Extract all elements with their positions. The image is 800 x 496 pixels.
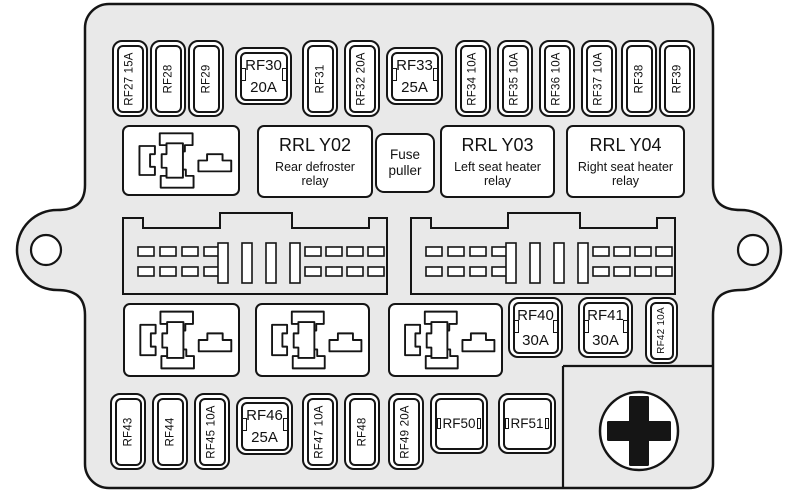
- fuse-terminal-notch: [283, 418, 288, 431]
- fuse-rf50: RF50: [430, 393, 488, 454]
- fuse-body: RF37 10A: [586, 45, 613, 113]
- fuse-terminal-notch: [392, 68, 397, 81]
- relay-socket-icon: [122, 125, 240, 196]
- fuse-label: RF44: [164, 417, 176, 446]
- fuse-box-diagram: RF27 15ARF28RF29RF3020ARF31RF32 20ARF332…: [0, 0, 800, 496]
- fuse-amperage: 30A: [522, 333, 549, 349]
- fuse-body: RF29: [193, 45, 220, 113]
- fuse-body: RF35 10A: [502, 45, 529, 113]
- fuse-rf46: RF4625A: [236, 397, 293, 455]
- fuse-terminal-notch: [477, 418, 481, 429]
- fuse-rf35-10a: RF35 10A: [497, 40, 533, 117]
- fuse-label: RF49 20A: [400, 405, 412, 458]
- fuse-rf31: RF31: [302, 40, 338, 117]
- fuse-body: RF50: [435, 398, 484, 450]
- relay-socket-icon: [388, 303, 503, 377]
- mounting-hole-right: [738, 235, 768, 265]
- fuse-body: RF39: [664, 45, 691, 113]
- fuse-body: RF45 10A: [199, 398, 226, 466]
- fuse-amperage: 25A: [251, 430, 278, 446]
- fuse-body: RF34 10A: [460, 45, 487, 113]
- fuse-rf42-10a: RF42 10A: [645, 297, 678, 364]
- fuse-rf30: RF3020A: [235, 47, 292, 105]
- fuse-rf28: RF28: [150, 40, 186, 117]
- fuse-label: RF42 10A: [656, 307, 667, 354]
- fuse-rf44: RF44: [152, 393, 188, 470]
- fuse-terminal-notch: [242, 418, 247, 431]
- relay-description: Right seat heater relay: [575, 160, 677, 188]
- fuse-rf32-20a: RF32 20A: [344, 40, 380, 117]
- fuse-label: RF48: [356, 417, 368, 446]
- fuse-label: RF35 10A: [509, 52, 521, 105]
- relay-title: RRL Y04: [589, 136, 661, 154]
- fuse-label: RF45 10A: [206, 405, 218, 458]
- fuse-amperage: 30A: [592, 333, 619, 349]
- fuse-label: RF37 10A: [593, 52, 605, 105]
- fuse-rf48: RF48: [344, 393, 380, 470]
- fuse-body: RF3325A: [391, 52, 439, 101]
- fuse-body: RF44: [157, 398, 184, 466]
- fuse-label: RF30: [245, 58, 282, 74]
- plus-icon: [607, 421, 671, 441]
- fuse-body: RF48: [349, 398, 376, 466]
- fuse-label: RF28: [162, 64, 174, 93]
- fuse-body: RF47 10A: [307, 398, 334, 466]
- fuse-body: RF27 15A: [117, 45, 144, 113]
- fuse-label: RF34 10A: [467, 52, 479, 105]
- fuse-label: RF39: [671, 64, 683, 93]
- fuse-body: RF3020A: [240, 52, 288, 101]
- mounting-hole-left: [31, 235, 61, 265]
- fuse-rf39: RF39: [659, 40, 695, 117]
- fuse-terminal-notch: [514, 320, 519, 333]
- relay-description: Rear defroster relay: [264, 160, 366, 188]
- fuse-label: RF38: [633, 64, 645, 93]
- fuse-body: RF38: [626, 45, 653, 113]
- fuse-rf34-10a: RF34 10A: [455, 40, 491, 117]
- fuse-label: RF33: [396, 58, 433, 74]
- fuse-label: RF27 15A: [124, 52, 136, 105]
- fuse-amperage: 20A: [250, 80, 277, 96]
- fuse-label: RF41: [587, 308, 624, 324]
- fuse-body: RF4130A: [583, 302, 629, 354]
- fuse-rf43: RF43: [110, 393, 146, 470]
- relay-description: Left seat heater relay: [447, 160, 549, 188]
- fuse-rf40: RF4030A: [508, 297, 563, 358]
- fuse-rf38: RF38: [621, 40, 657, 117]
- fuse-label: RF46: [246, 408, 283, 424]
- fuse-rf41: RF4130A: [578, 297, 633, 358]
- fuse-label: RF36 10A: [551, 52, 563, 105]
- relay-title: RRL Y02: [279, 136, 351, 154]
- relay-socket-icon: [123, 303, 240, 377]
- harness-connector-icon: [122, 212, 388, 295]
- fuse-body: RF28: [155, 45, 182, 113]
- relay-box-rrl-y02: RRL Y02Rear defroster relay: [257, 125, 373, 198]
- fuse-rf45-10a: RF45 10A: [194, 393, 230, 470]
- fuse-body: RF49 20A: [393, 398, 420, 466]
- fuse-terminal-notch: [241, 68, 246, 81]
- fuse-terminal-notch: [623, 320, 628, 333]
- fuse-label: RF31: [314, 64, 326, 93]
- fuse-body: RF42 10A: [650, 302, 674, 360]
- fuse-body: RF43: [115, 398, 142, 466]
- fuse-rf47-10a: RF47 10A: [302, 393, 338, 470]
- fuse-label: RF51: [510, 416, 543, 431]
- relay-box-rrl-y03: RRL Y03Left seat heater relay: [440, 125, 555, 198]
- fuse-body: RF4625A: [241, 402, 289, 451]
- fuse-body: RF51: [503, 398, 552, 450]
- relay-socket-icon: [255, 303, 370, 377]
- fuse-rf49-20a: RF49 20A: [388, 393, 424, 470]
- fuse-rf37-10a: RF37 10A: [581, 40, 617, 117]
- fuse-label: RF50: [442, 416, 475, 431]
- fuse-label: RF32 20A: [356, 52, 368, 105]
- harness-connector-icon: [410, 212, 676, 295]
- fuse-puller-label: Fuse puller: [384, 147, 426, 179]
- fuse-rf36-10a: RF36 10A: [539, 40, 575, 117]
- fuse-rf51: RF51: [498, 393, 556, 454]
- fuse-label: RF47 10A: [314, 405, 326, 458]
- fuse-rf33: RF3325A: [386, 47, 443, 105]
- fuse-puller: Fuse puller: [375, 133, 435, 193]
- fuse-terminal-notch: [437, 418, 441, 429]
- fuse-rf27-15a: RF27 15A: [112, 40, 148, 117]
- fuse-body: RF4030A: [513, 302, 559, 354]
- fuse-body: RF36 10A: [544, 45, 571, 113]
- fuse-amperage: 25A: [401, 80, 428, 96]
- fuse-rf29: RF29: [188, 40, 224, 117]
- fuse-terminal-notch: [433, 68, 438, 81]
- fuse-body: RF32 20A: [349, 45, 376, 113]
- fuse-terminal-notch: [545, 418, 549, 429]
- fuse-body: RF31: [307, 45, 334, 113]
- relay-box-rrl-y04: RRL Y04Right seat heater relay: [566, 125, 685, 198]
- relay-title: RRL Y03: [461, 136, 533, 154]
- fuse-label: RF40: [517, 308, 554, 324]
- fuse-terminal-notch: [553, 320, 558, 333]
- fuse-label: RF29: [200, 64, 212, 93]
- fuse-terminal-notch: [584, 320, 589, 333]
- fuse-terminal-notch: [505, 418, 509, 429]
- fuse-label: RF43: [122, 417, 134, 446]
- fuse-terminal-notch: [282, 68, 287, 81]
